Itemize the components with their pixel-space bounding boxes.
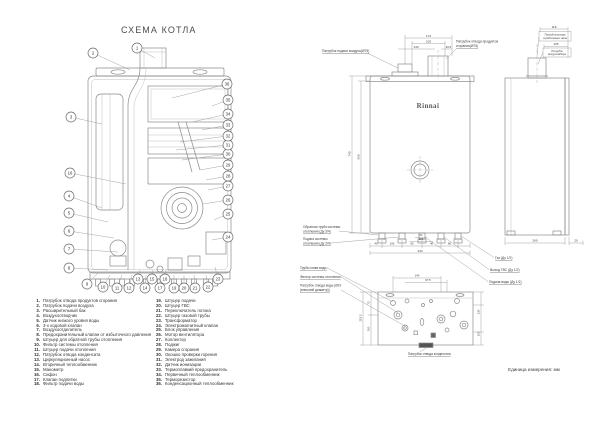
callout-number: 18 [163, 277, 168, 282]
drawing-annotation: (внешний диаметр)) [300, 288, 330, 292]
drawing-annotation: 140 [413, 45, 418, 49]
drawing-annotation: Труба слива воды [300, 266, 327, 270]
drawing-annotation: Обратная труба системы [303, 225, 341, 229]
drawing-annotation: 100 [419, 237, 424, 241]
drawing-annotation: Единица измерения: мм [508, 367, 560, 372]
drawing-annotation: сгорания(Ø75) [456, 44, 478, 48]
part-label: Фильтр подачи воды [43, 382, 84, 387]
page-title: СХЕМА КОТЛА [121, 25, 196, 35]
callout-number: 13 [136, 277, 141, 282]
callout-number: 27 [226, 184, 231, 189]
drawing-annotation: Rinnai [417, 102, 440, 110]
drawing-annotation: Патрубок отвода конденсата [408, 352, 451, 356]
drawing-annotation: 105 [553, 42, 558, 46]
dimension-annotations: Патрубок подачи воздуха(Ø75)Патрубок отв… [300, 25, 578, 372]
drawing-annotation: 173 [426, 34, 431, 38]
drawing-annotation: 60 [410, 242, 414, 246]
callout-number: 14 [143, 286, 148, 291]
boiler-cutaway-diagram: 1231645678910111213141517181920212223242… [60, 42, 260, 297]
drawing-annotation: Патрубок подачи воздуха(Ø75) [322, 49, 369, 53]
parts-list-item: 36.Конденсационный теплообменник [152, 382, 233, 387]
callout-number: 21 [193, 286, 198, 291]
side-view [505, 58, 569, 235]
parts-list-column-1: 1.Патрубок отвода продуктов сгорания2.Па… [30, 299, 151, 387]
drawing-annotation: отопления (Ду 3/4) [303, 242, 331, 246]
parts-list-column-2: 19.Штуцер подачи20.Штуцер ГВС21.Переключ… [152, 299, 233, 387]
callout-leader-line [69, 213, 108, 222]
part-number: 18. [30, 382, 40, 387]
drawing-annotation: Подача системы [303, 237, 328, 241]
callout-number: 35 [226, 98, 231, 103]
callout-number: 32 [226, 134, 231, 139]
drawing-annotation: Подача воды (Ду 1/2) [489, 280, 522, 284]
drawing-annotation: 26.5 [446, 45, 452, 49]
dimension-drawings: Патрубок подачи воздуха(Ø75)Патрубок отв… [295, 22, 600, 403]
callout-number: 25 [226, 212, 231, 217]
callout-layer: 1231645678910111213141517181920212223242… [64, 43, 233, 293]
part-label: Конденсационный теплообменник [165, 382, 233, 387]
callout-number: 20 [182, 286, 187, 291]
drawing-annotation: Газ (Ду 1/2) [495, 256, 512, 260]
callout-leader-line [176, 145, 228, 150]
drawing-annotation: 40 [430, 242, 434, 246]
callout-number: 36 [225, 82, 230, 87]
drawing-annotation: 100 [390, 242, 395, 246]
drawing-annotation: 40 [374, 242, 378, 246]
callout-number: 24 [226, 235, 231, 240]
drawing-annotation: 80 [448, 242, 452, 246]
callout-number: 33 [226, 123, 231, 128]
front-view [366, 56, 474, 243]
drawing-annotation: 740 [348, 151, 352, 156]
part-number: 36. [152, 382, 162, 387]
drawing-annotation: 219.5 [359, 314, 363, 321]
drawing-annotation: отопления (Ду 3/4) [303, 230, 331, 234]
drawing-annotation: 440 [417, 249, 422, 253]
bottom-view [378, 292, 473, 348]
drawing-annotation: Патрубок отвода воды (Ø19 [300, 284, 341, 288]
callout-number: 17 [158, 286, 163, 291]
callout-leader-line [70, 173, 126, 184]
drawing-annotation: 660 [357, 154, 361, 159]
callout-number: 34 [226, 112, 231, 117]
drawing-annotation: Патрубок выхода [545, 33, 566, 37]
callout-number: 23 [216, 277, 221, 282]
drawing-annotation: воздухозабора [548, 52, 566, 56]
callout-number: 26 [226, 198, 231, 203]
callout-number: 31 [226, 143, 231, 148]
callout-number: 10 [101, 285, 106, 290]
parts-list-item: 18.Фильтр подачи воды [30, 382, 151, 387]
drawing-annotation: Патрубок отвода продуктов [456, 40, 498, 44]
callout-leader-line [93, 53, 130, 70]
callout-number: 29 [226, 163, 231, 168]
drawing-annotation: 100 [367, 326, 371, 331]
drawing-annotation: 118 [552, 25, 557, 29]
callout-leader-line [192, 114, 228, 122]
drawing-annotation: 100 [426, 39, 431, 43]
drawing-annotation: Патрубок [551, 49, 563, 53]
drawing-annotation: 73 [367, 301, 371, 305]
drawing-annotation: 130 [477, 309, 481, 314]
callout-number: 11 [115, 286, 120, 291]
drawing-annotation: 100 [477, 331, 481, 336]
callout-number: 30 [226, 152, 231, 157]
drawing-annotation: 20 [574, 239, 578, 243]
callout-number: 19 [172, 286, 177, 291]
drawing-annotation: Выход ГВС (Ду 1/2) [490, 268, 520, 272]
callout-number: 22 [206, 285, 211, 290]
drawing-annotation: 140 [415, 274, 420, 278]
manual-page: СХЕМА КОТЛА [0, 0, 600, 423]
callout-number: 15 [150, 277, 155, 282]
callout-number: 16 [68, 171, 73, 176]
drawing-annotation: отработанных газов [543, 36, 568, 40]
callout-number: 28 [226, 174, 231, 179]
drawing-annotation: Фильтр системы отопления [300, 275, 341, 279]
drawing-annotation: 260 [532, 239, 537, 243]
callout-leader-line [182, 154, 228, 160]
callout-number: 12 [127, 286, 132, 291]
drawing-annotation: 97.5 [425, 278, 431, 282]
drawing-annotation: 52 [420, 233, 423, 237]
